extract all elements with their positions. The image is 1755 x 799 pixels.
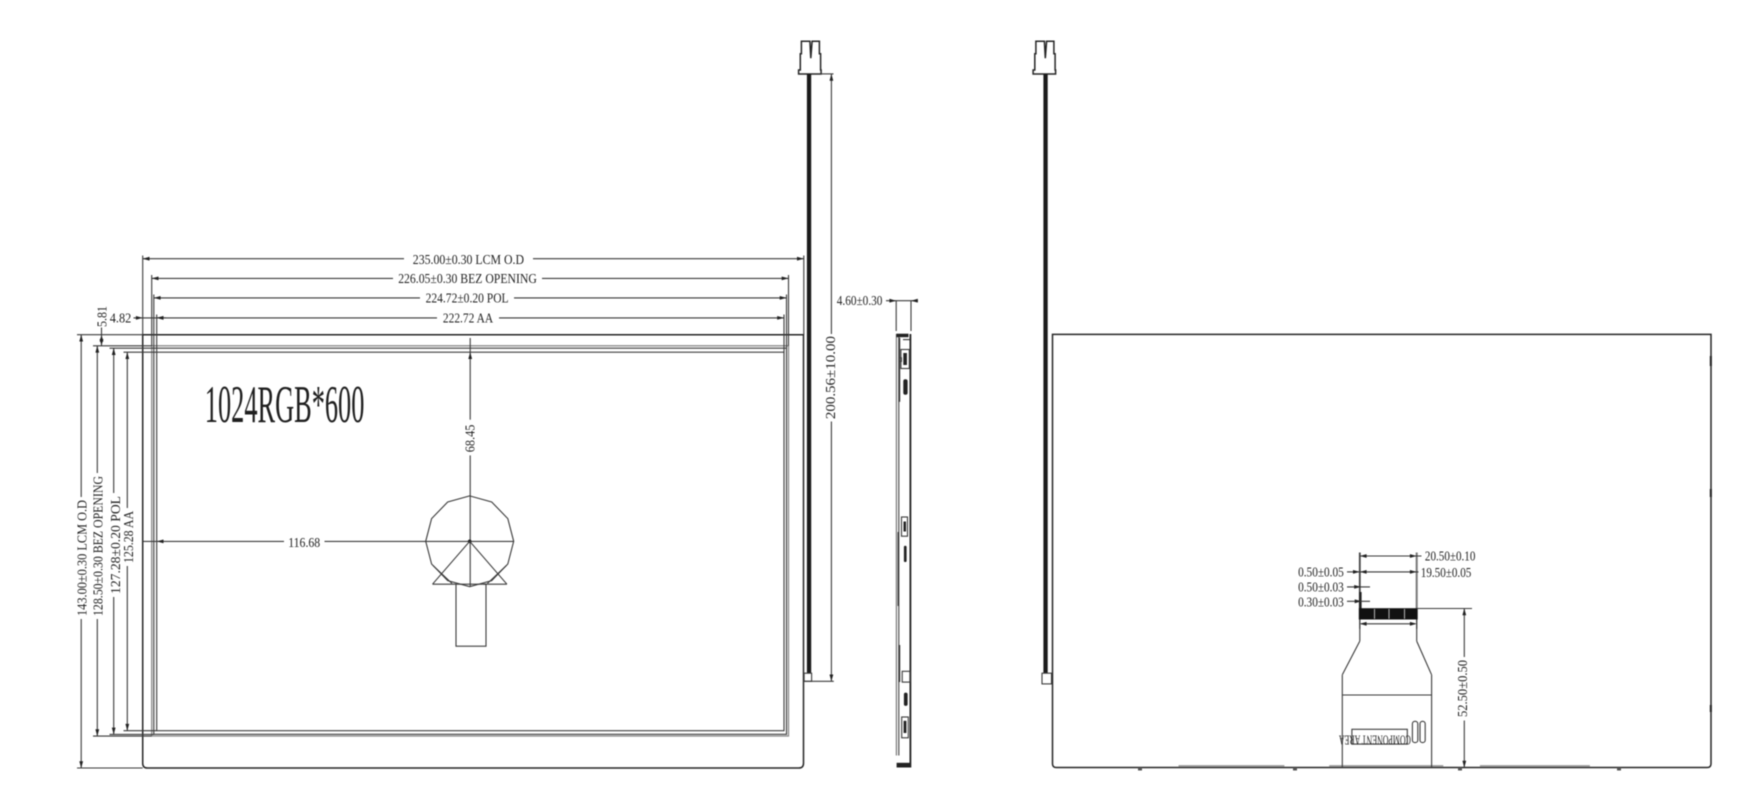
svg-text:5.81: 5.81 [95, 306, 110, 327]
svg-text:20.50±0.10: 20.50±0.10 [1425, 550, 1476, 565]
svg-text:125.28 AA: 125.28 AA [122, 510, 137, 563]
svg-text:52.50±0.50: 52.50±0.50 [1456, 660, 1471, 717]
svg-text:128.50±0.30 BEZ OPENING: 128.50±0.30 BEZ OPENING [92, 476, 107, 616]
svg-text:224.72±0.20 POL: 224.72±0.20 POL [426, 292, 509, 307]
svg-text:200.56±10.00: 200.56±10.00 [824, 336, 839, 419]
svg-text:226.05±0.30 BEZ OPENING: 226.05±0.30 BEZ OPENING [398, 272, 537, 287]
svg-text:4.60±0.30: 4.60±0.30 [837, 294, 883, 309]
svg-text:COMPONENT AREA: COMPONENT AREA [1338, 731, 1411, 746]
svg-text:0.30±0.03: 0.30±0.03 [1298, 595, 1344, 610]
svg-text:19.50±0.05: 19.50±0.05 [1421, 566, 1472, 581]
svg-text:1024RGB*600: 1024RGB*600 [205, 376, 365, 434]
svg-text:222.72 AA: 222.72 AA [443, 312, 494, 327]
svg-text:143.00±0.30 LCM O.D: 143.00±0.30 LCM O.D [76, 500, 91, 616]
svg-text:0.50±0.05: 0.50±0.05 [1298, 565, 1344, 580]
svg-text:235.00±0.30 LCM O.D: 235.00±0.30 LCM O.D [413, 253, 524, 268]
svg-text:68.45: 68.45 [463, 425, 478, 453]
svg-text:4.82: 4.82 [110, 312, 132, 327]
svg-text:116.68: 116.68 [288, 536, 320, 551]
svg-text:0.50±0.03: 0.50±0.03 [1298, 580, 1344, 595]
